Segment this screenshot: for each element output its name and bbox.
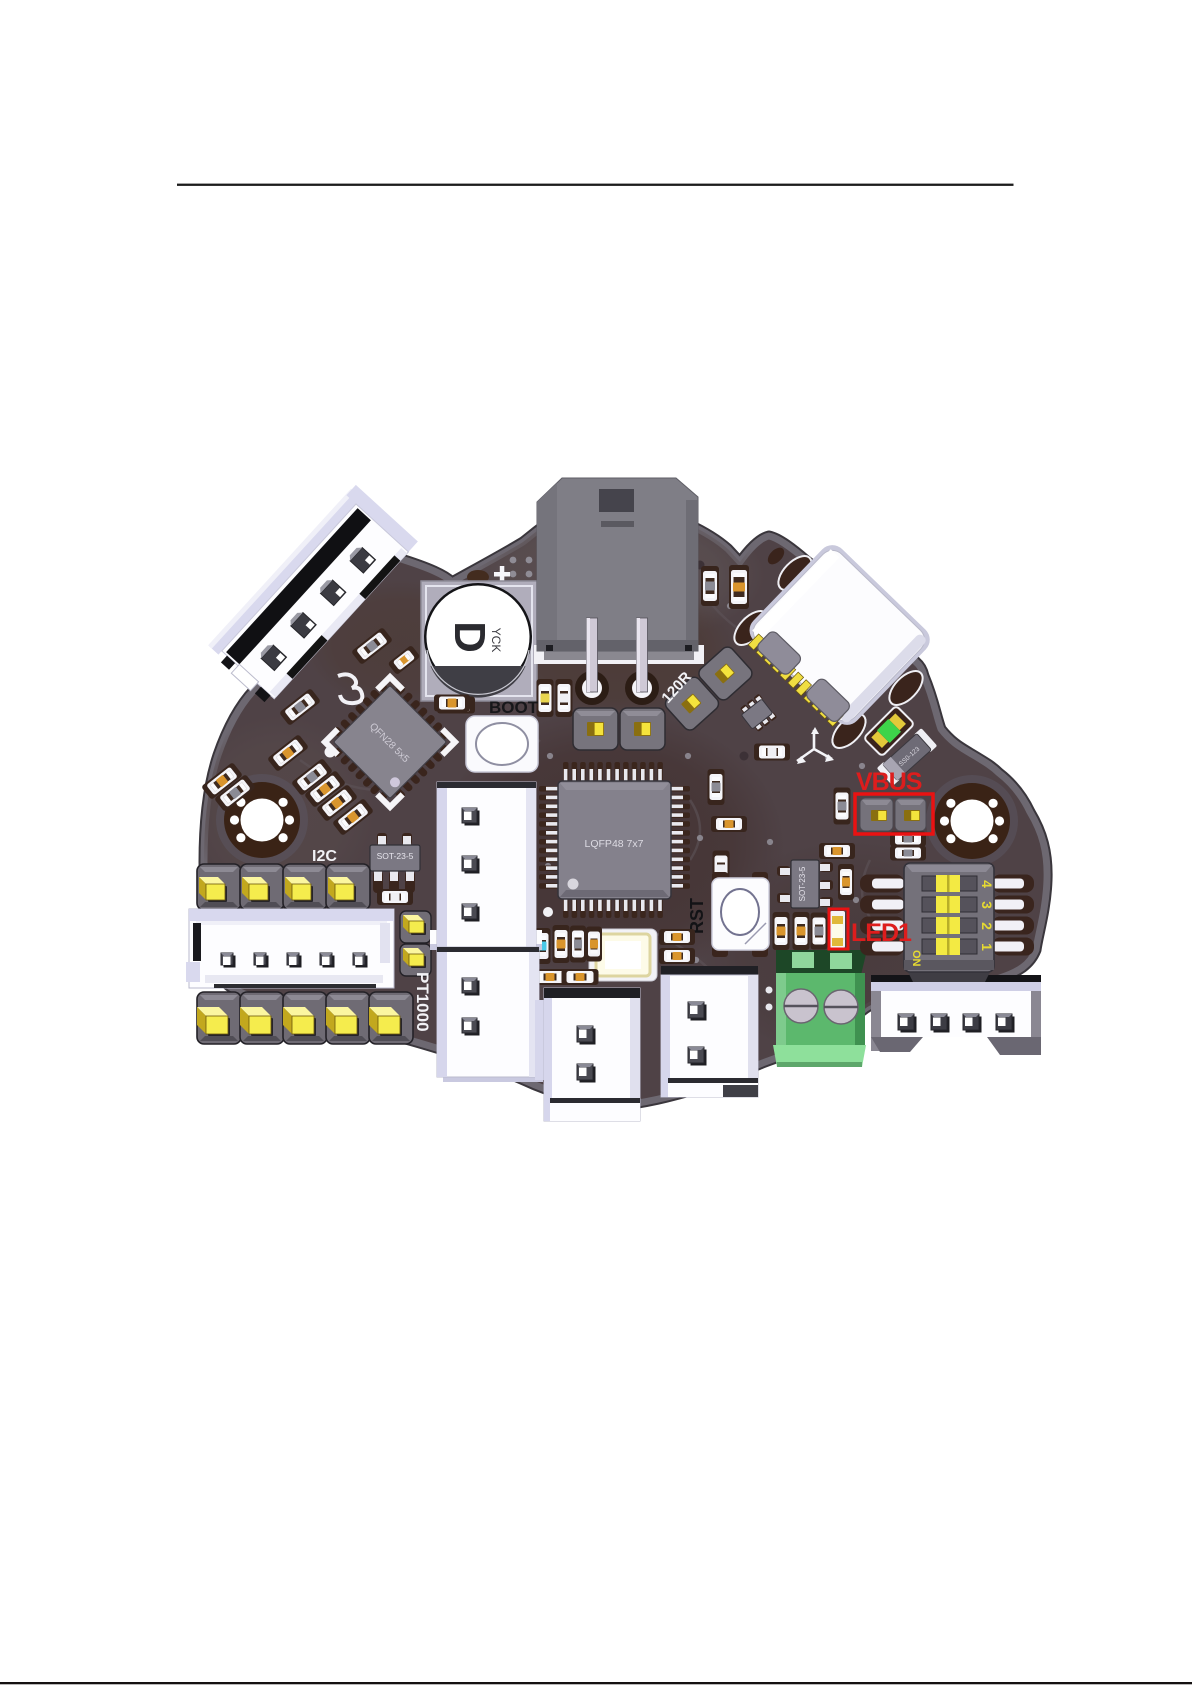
- svg-text:3: 3: [979, 901, 995, 909]
- svg-text:1: 1: [979, 943, 995, 951]
- svg-text:LED1: LED1: [851, 919, 912, 947]
- svg-text:BOOT: BOOT: [489, 698, 539, 717]
- svg-text:2: 2: [979, 922, 995, 930]
- svg-text:YCK: YCK: [489, 628, 503, 653]
- svg-text:ON: ON: [910, 950, 922, 967]
- svg-text:SOT-23-5: SOT-23-5: [798, 866, 807, 901]
- svg-text:LQFP48 7x7: LQFP48 7x7: [585, 838, 644, 850]
- svg-text:VBUS: VBUS: [856, 768, 922, 796]
- svg-text:RST: RST: [687, 898, 707, 934]
- svg-text:I2C: I2C: [312, 848, 337, 865]
- svg-text:D: D: [445, 621, 494, 653]
- svg-text:4: 4: [979, 880, 995, 888]
- svg-text:SOT-23-5: SOT-23-5: [377, 851, 414, 861]
- svg-text:PT1000: PT1000: [413, 972, 432, 1032]
